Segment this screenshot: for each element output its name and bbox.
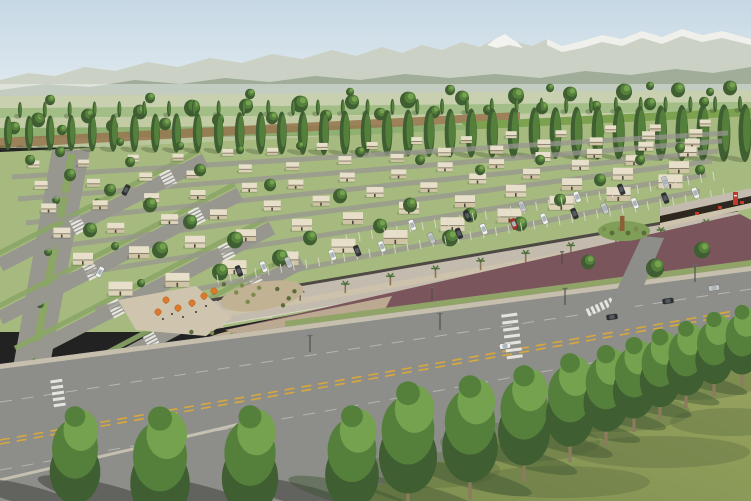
tree [194,164,206,177]
aerial-rendering [0,0,751,501]
house [687,129,702,138]
tree [546,84,554,92]
house [71,253,93,266]
tree [143,198,157,213]
house [389,169,406,179]
house [107,282,133,297]
tree [635,155,645,166]
house [33,181,48,190]
house [237,164,252,173]
house [657,174,683,189]
rendering-canvas [0,0,751,501]
house [365,187,384,198]
tree [239,99,253,114]
tree [111,242,119,250]
person [182,316,184,318]
house [382,230,408,245]
tree [333,189,347,204]
tree [694,242,710,259]
house [536,140,551,149]
house [164,273,190,288]
tree [535,155,545,166]
house [667,161,689,174]
tree [57,125,67,136]
tree [83,223,97,238]
tree [137,279,145,287]
tree [403,198,417,213]
house [636,142,653,152]
person [162,318,164,320]
house [487,159,504,169]
house [640,131,655,140]
tree [646,82,654,90]
tree [646,259,664,278]
house [286,180,303,190]
house [418,182,437,193]
tree [236,146,244,154]
tree [616,84,632,101]
house [504,185,526,198]
tree [45,95,55,106]
tree [695,165,705,176]
house [208,209,227,220]
tree [346,88,354,96]
tree [581,255,595,270]
house [453,195,475,208]
tree [594,174,606,187]
shop-sign [718,206,722,209]
house [605,187,631,202]
tree [104,184,116,197]
house [585,149,602,159]
house [91,200,108,210]
house [105,223,124,234]
house [240,183,257,193]
tree [227,232,243,249]
house [137,173,152,182]
house [588,137,603,146]
house [570,160,589,171]
tree [303,231,317,246]
tree [125,157,135,168]
house [436,148,451,157]
house [467,173,486,184]
house [336,156,351,165]
tree [445,85,455,96]
tree [400,92,416,109]
house [436,162,453,172]
tree [355,147,365,158]
tree [176,142,184,150]
tree [55,147,65,158]
tree [183,215,197,230]
person [171,313,173,315]
tree [675,143,685,154]
tree [554,194,566,207]
tree [64,169,76,182]
tree [415,155,425,166]
house [311,196,330,207]
tree [212,264,228,281]
house [183,236,205,249]
person [205,305,207,307]
house [262,201,281,212]
house [560,178,582,191]
house [338,173,355,183]
house [127,246,149,259]
tree [475,165,485,176]
tree [644,98,656,111]
tree [723,81,737,96]
house [159,214,178,225]
person [195,311,197,313]
tree [25,155,35,166]
sculpture [620,216,625,231]
tree [145,93,155,104]
house [389,154,404,163]
tree [706,88,714,96]
shop-sign [740,201,744,204]
tree [264,179,276,192]
tree [296,142,304,150]
shop-sign [695,212,699,215]
house [290,219,312,232]
tree [345,95,359,110]
tree [159,118,171,131]
house [85,179,100,188]
house [611,168,633,181]
tree [245,89,255,100]
house [521,169,540,180]
house [284,162,299,171]
tree [671,83,685,98]
house [189,190,206,200]
house [51,228,70,239]
person [217,299,219,301]
tree [116,138,124,146]
monument-sign [733,192,738,205]
house [488,146,503,155]
tree [152,242,168,259]
house [341,212,363,225]
house [39,203,56,213]
